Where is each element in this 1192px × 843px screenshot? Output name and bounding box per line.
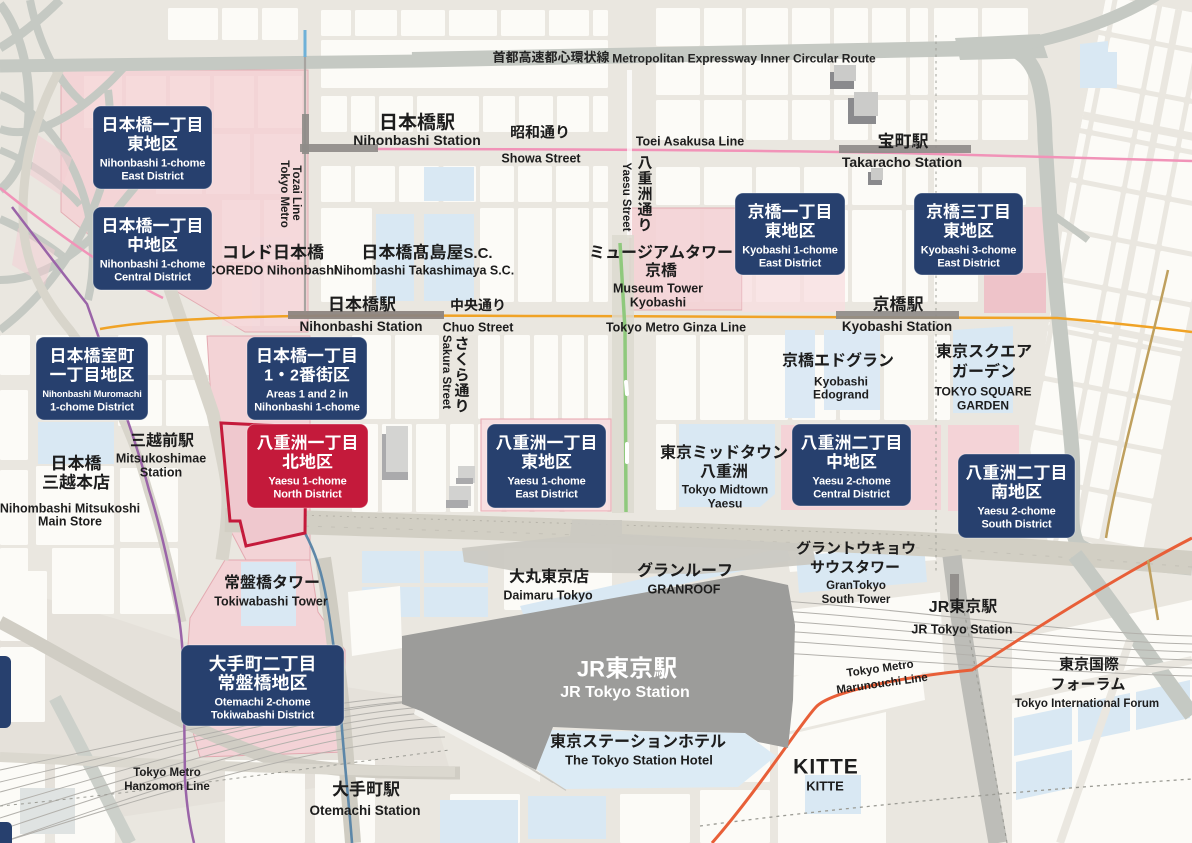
svg-text:JR Tokyo Station: JR Tokyo Station bbox=[911, 623, 1012, 637]
svg-text:Chuo Street: Chuo Street bbox=[443, 321, 515, 335]
svg-text:Yaesu 2-chome: Yaesu 2-chome bbox=[977, 506, 1055, 518]
svg-text:GARDEN: GARDEN bbox=[957, 398, 1009, 412]
svg-text:Yaesu 2-chome: Yaesu 2-chome bbox=[812, 476, 890, 488]
svg-text:Nihonbashi Muromachi: Nihonbashi Muromachi bbox=[42, 389, 141, 399]
svg-text:Kyobashi: Kyobashi bbox=[630, 296, 686, 310]
svg-text:Metropolitan Expressway Inner: Metropolitan Expressway Inner Circular R… bbox=[612, 51, 876, 65]
svg-text:Kyobashi 1-chome: Kyobashi 1-chome bbox=[742, 245, 837, 257]
svg-text:Yaesu 1-chome: Yaesu 1-chome bbox=[507, 476, 585, 488]
svg-text:S.C.: S.C. bbox=[463, 245, 492, 262]
svg-text:Nihonbashi Station: Nihonbashi Station bbox=[353, 132, 481, 148]
svg-text:Daimaru Tokyo: Daimaru Tokyo bbox=[503, 589, 593, 603]
svg-text:Yaesu: Yaesu bbox=[708, 496, 743, 510]
svg-text:Yaesu 1-chome: Yaesu 1-chome bbox=[268, 476, 346, 488]
svg-text:Station: Station bbox=[140, 466, 182, 480]
svg-text:Nihombashi Takashimaya S.C.: Nihombashi Takashimaya S.C. bbox=[334, 264, 514, 278]
svg-text:Tokyo Metro: Tokyo Metro bbox=[278, 160, 290, 228]
svg-text:Nihonbashi Station: Nihonbashi Station bbox=[300, 319, 423, 334]
svg-text:1: 1 bbox=[264, 368, 273, 385]
svg-text:Nihonbashi 1-chome: Nihonbashi 1-chome bbox=[100, 259, 206, 271]
svg-text:East District: East District bbox=[121, 171, 184, 183]
svg-text:Tokyo Metro: Tokyo Metro bbox=[133, 767, 201, 779]
svg-text:Otemachi 2-chome: Otemachi 2-chome bbox=[214, 697, 310, 709]
svg-text:Areas 1 and 2 in: Areas 1 and 2 in bbox=[266, 389, 348, 401]
svg-text:Tokyo Metro Ginza Line: Tokyo Metro Ginza Line bbox=[606, 321, 746, 335]
svg-text:Hanzomon Line: Hanzomon Line bbox=[124, 781, 210, 793]
svg-text:East District: East District bbox=[937, 258, 1000, 270]
svg-text:JR: JR bbox=[929, 599, 950, 616]
svg-text:Nihonbashi 1-chome: Nihonbashi 1-chome bbox=[254, 402, 360, 414]
svg-text:East District: East District bbox=[515, 489, 578, 501]
svg-text:JR: JR bbox=[577, 657, 605, 682]
svg-text:Tokiwabashi Tower: Tokiwabashi Tower bbox=[214, 595, 328, 609]
svg-text:Tokyo International Forum: Tokyo International Forum bbox=[1015, 698, 1159, 710]
svg-text:The Tokyo Station Hotel: The Tokyo Station Hotel bbox=[565, 753, 713, 768]
svg-text:Tokyo Midtown: Tokyo Midtown bbox=[682, 482, 768, 496]
svg-text:Mitsukoshimae: Mitsukoshimae bbox=[116, 452, 206, 466]
svg-text:1-chome District: 1-chome District bbox=[50, 402, 134, 414]
svg-text:North District: North District bbox=[273, 489, 342, 501]
svg-text:Tokiwabashi District: Tokiwabashi District bbox=[211, 710, 315, 722]
svg-text:Nihonbashi 1-chome: Nihonbashi 1-chome bbox=[100, 158, 206, 170]
svg-text:Showa Street: Showa Street bbox=[501, 152, 581, 166]
svg-text:JR Tokyo Station: JR Tokyo Station bbox=[560, 684, 690, 701]
svg-text:Yaesu Street: Yaesu Street bbox=[620, 162, 632, 231]
svg-text:Main Store: Main Store bbox=[38, 515, 102, 529]
svg-text:Edogrand: Edogrand bbox=[813, 387, 869, 401]
svg-text:South District: South District bbox=[981, 519, 1051, 531]
svg-text:Sakura Street: Sakura Street bbox=[440, 335, 452, 409]
svg-text:COREDO Nihonbashi: COREDO Nihonbashi bbox=[206, 263, 337, 278]
svg-text:South Tower: South Tower bbox=[822, 594, 891, 606]
svg-text:Nihombashi Mitsukoshi: Nihombashi Mitsukoshi bbox=[0, 502, 140, 516]
svg-text:Museum Tower: Museum Tower bbox=[613, 282, 703, 296]
svg-text:KITTE: KITTE bbox=[806, 779, 844, 794]
svg-text:Tozai Line: Tozai Line bbox=[290, 165, 302, 220]
svg-text:Takaracho Station: Takaracho Station bbox=[842, 154, 962, 170]
svg-text:GranTokyo: GranTokyo bbox=[826, 580, 886, 592]
svg-text:Kyobashi: Kyobashi bbox=[814, 374, 868, 388]
svg-text:Central District: Central District bbox=[813, 489, 890, 501]
svg-text:Central District: Central District bbox=[114, 272, 191, 284]
svg-text:TOKYO SQUARE: TOKYO SQUARE bbox=[934, 384, 1031, 398]
svg-text:2: 2 bbox=[290, 368, 299, 385]
svg-text:Kyobashi 3-chome: Kyobashi 3-chome bbox=[921, 245, 1016, 257]
svg-text:Otemachi Station: Otemachi Station bbox=[309, 803, 420, 818]
svg-text:East District: East District bbox=[759, 258, 822, 270]
svg-text:GRANROOF: GRANROOF bbox=[648, 583, 721, 597]
svg-text:Kyobashi Station: Kyobashi Station bbox=[842, 319, 952, 334]
svg-text:KITTE: KITTE bbox=[793, 756, 859, 779]
svg-text:Toei Asakusa Line: Toei Asakusa Line bbox=[636, 135, 744, 149]
